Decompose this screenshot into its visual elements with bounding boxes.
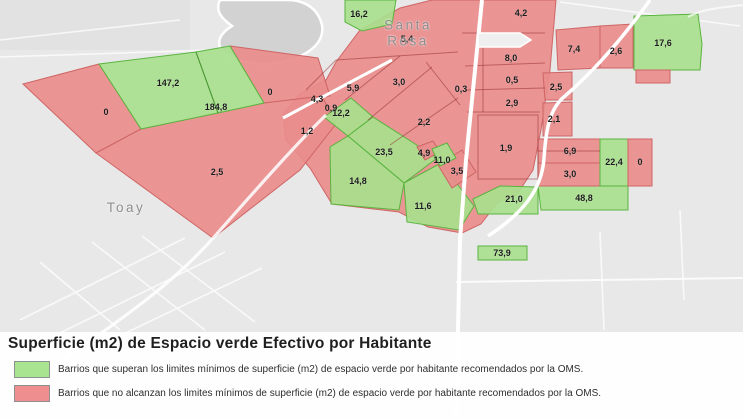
barrio-area[interactable] (538, 186, 628, 210)
barrio-area[interactable] (636, 70, 670, 83)
plaza (478, 33, 531, 47)
barrio-area[interactable] (478, 246, 527, 260)
green-swatch (14, 361, 50, 378)
map-screenshot: 16,24,25,45,93,00,3147,2184,8002,54,30,9… (0, 0, 743, 419)
terrain-patch (0, 0, 190, 50)
legend-label: Barrios que superan los limites mínimos … (58, 364, 583, 375)
barrio-area[interactable] (538, 163, 600, 186)
legend-item-superan: Barrios que superan los limites mínimos … (14, 361, 583, 378)
legend-item-no-alcanzan: Barrios que no alcanzan los limites míni… (14, 385, 601, 402)
barrio-area[interactable] (628, 139, 652, 186)
legend-label: Barrios que no alcanzan los limites míni… (58, 388, 601, 399)
map-title: Superficie (m2) de Espacio verde Efectiv… (8, 335, 432, 353)
red-swatch (14, 385, 50, 402)
barrio-area[interactable] (556, 26, 600, 70)
legend-panel: Superficie (m2) de Espacio verde Efectiv… (0, 332, 743, 419)
barrio-area[interactable] (600, 139, 628, 186)
barrio-area[interactable] (634, 14, 702, 70)
